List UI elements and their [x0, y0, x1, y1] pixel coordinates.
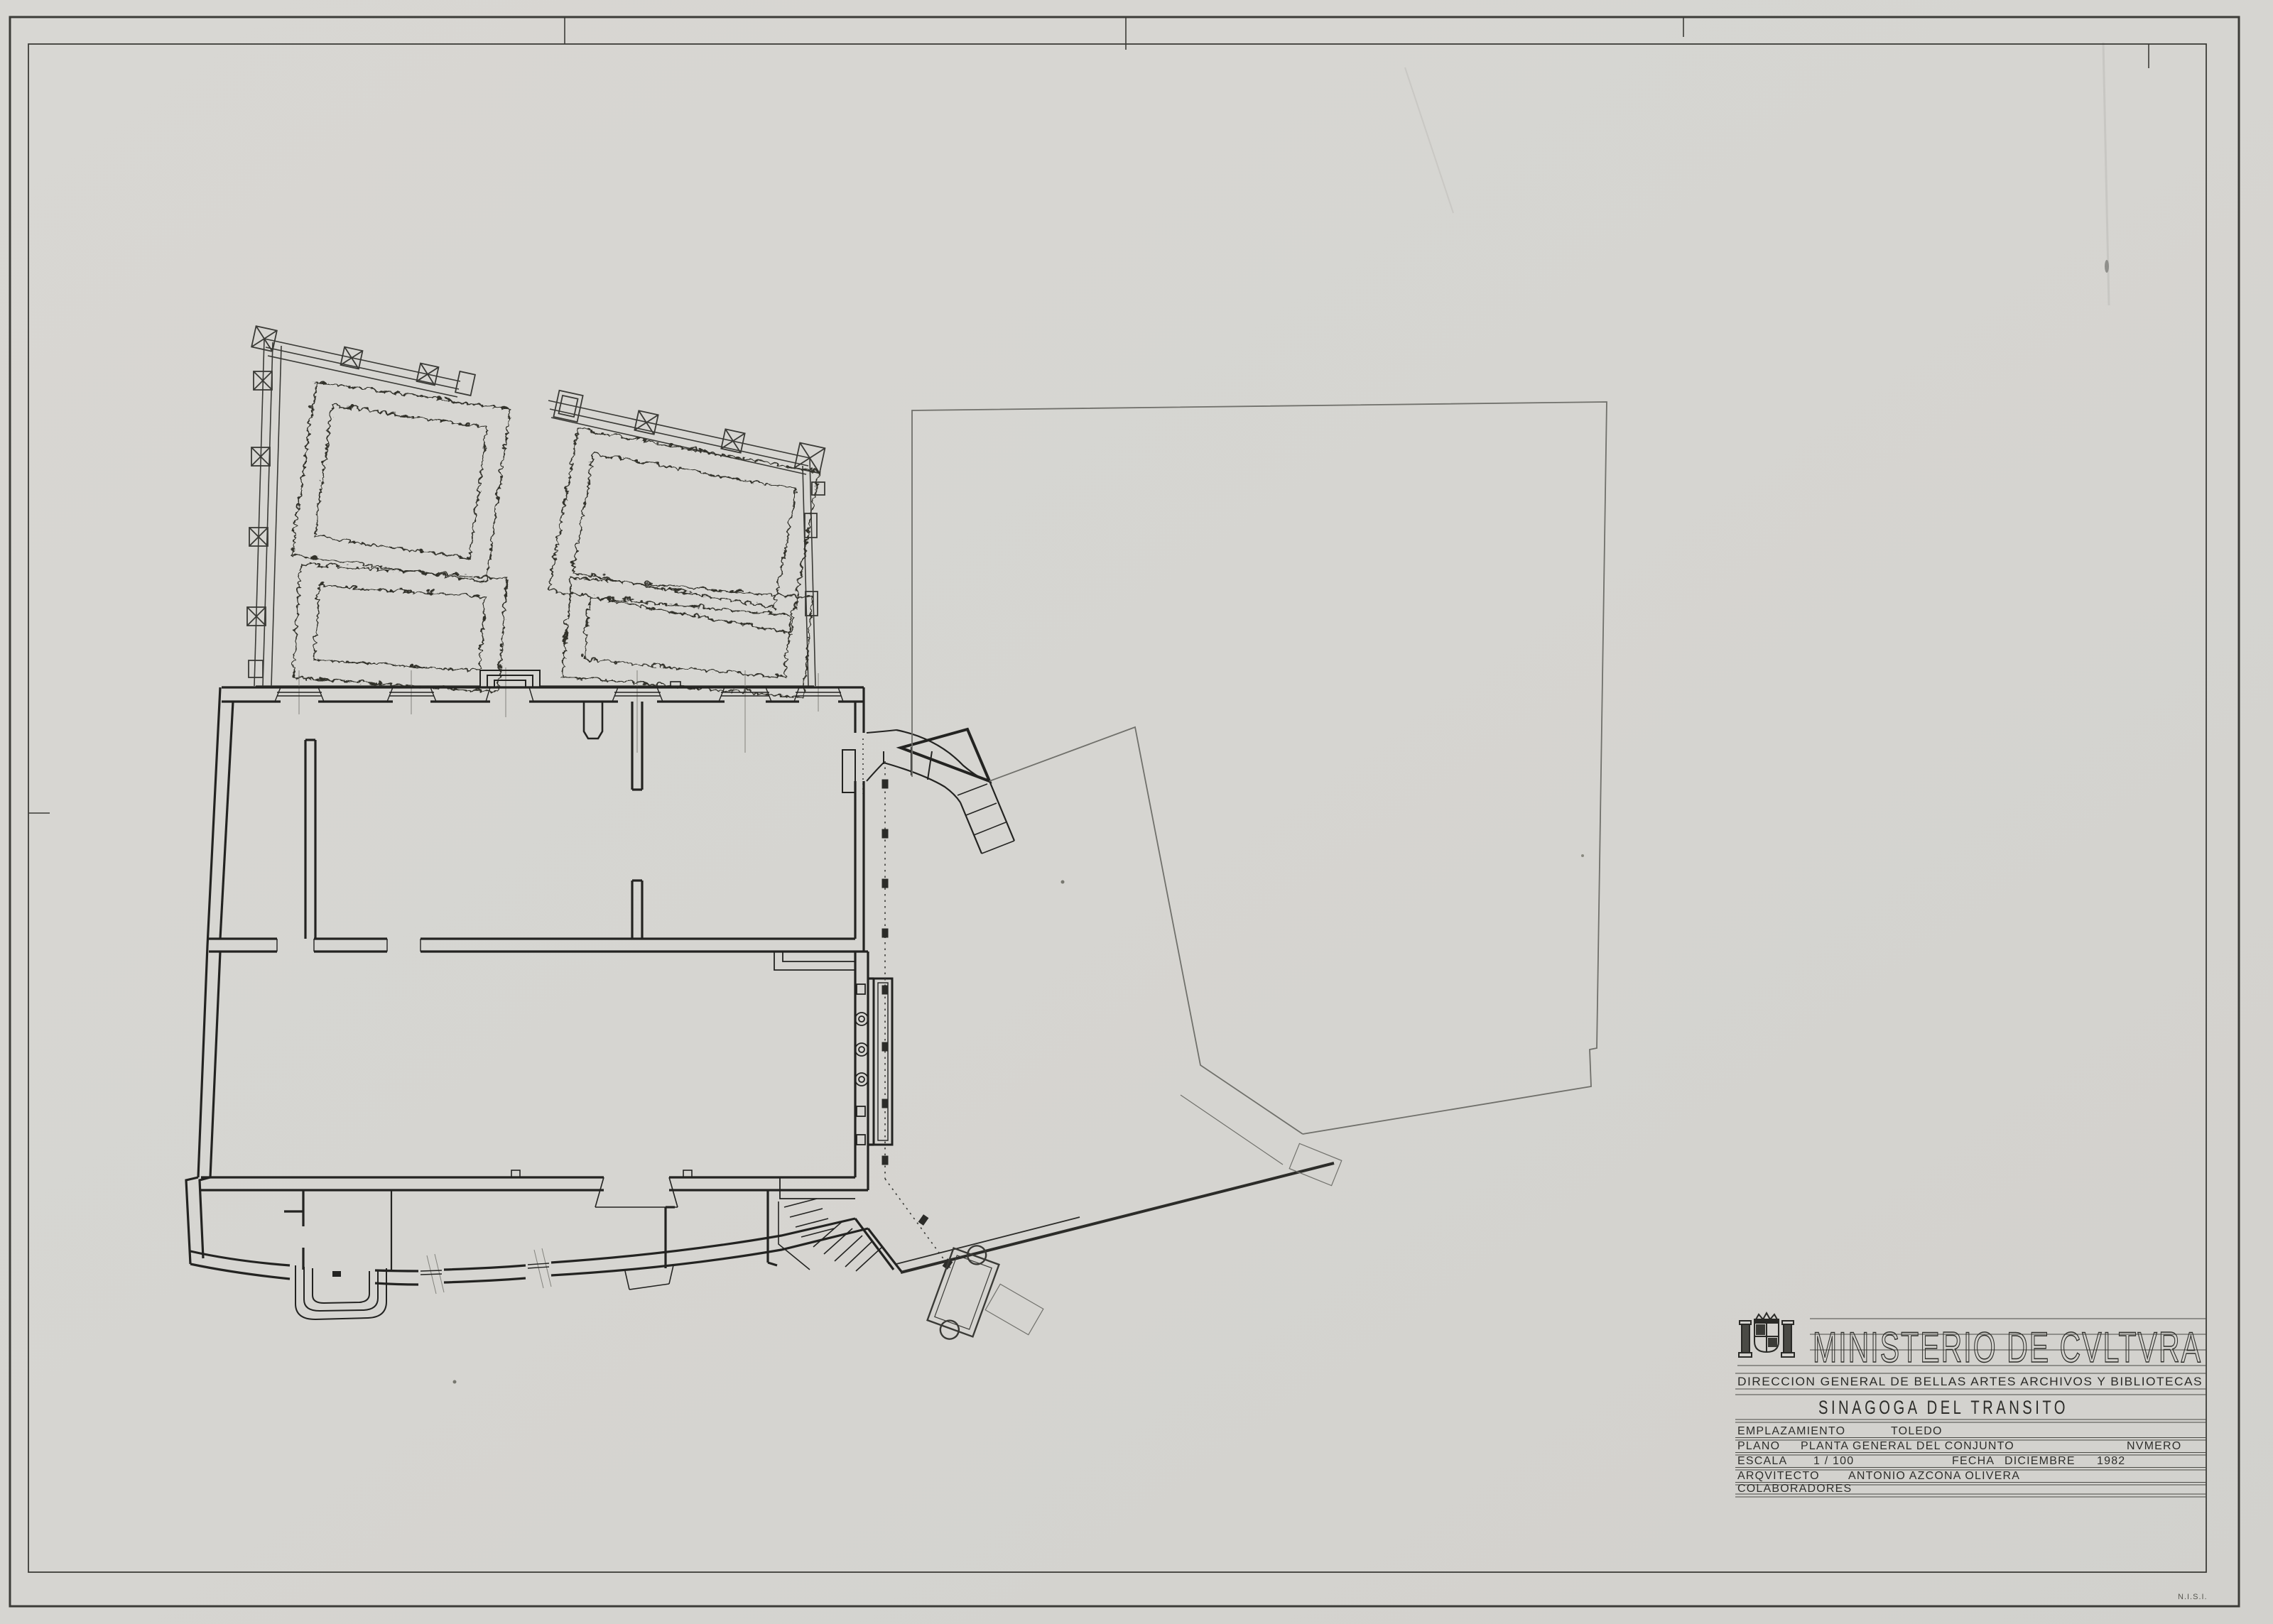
field-escala-value: 1 / 100: [1813, 1455, 1854, 1467]
field-fecha-label: FECHA: [1952, 1455, 1995, 1467]
field-fecha-year: 1982: [2097, 1455, 2125, 1467]
field-plano-value: PLANTA GENERAL DEL CONJUNTO: [1801, 1440, 2014, 1452]
department-line: DIRECCION GENERAL DE BELLAS ARTES ARCHIV…: [1737, 1375, 2203, 1388]
field-emplazamiento-value: TOLEDO: [1891, 1425, 1943, 1437]
plan-sheet-svg: MINISTERIO DE CVLTVRA DIRECCION GENERAL …: [0, 0, 2273, 1624]
project-title: SINAGOGA DEL TRANSITO: [1818, 1397, 2068, 1418]
field-arquitecto-value: ANTONIO AZCONA OLIVERA: [1848, 1470, 2020, 1482]
ministry-title: MINISTERIO DE CVLTVRA: [1813, 1324, 2202, 1371]
field-arquitecto-label: ARQVITECTO: [1737, 1470, 1820, 1482]
field-colaboradores-label: COLABORADORES: [1737, 1483, 1852, 1495]
field-fecha-value: DICIEMBRE: [2005, 1455, 2076, 1467]
scanned-drawing-sheet: MINISTERIO DE CVLTVRA DIRECCION GENERAL …: [0, 0, 2273, 1624]
field-emplazamiento-label: EMPLAZAMIENTO: [1737, 1425, 1845, 1437]
field-numero-label: NVMERO: [2127, 1440, 2181, 1452]
print-code: N.I.S.I.: [2178, 1593, 2208, 1601]
field-plano-label: PLANO: [1737, 1440, 1780, 1452]
field-escala-label: ESCALA: [1737, 1455, 1787, 1467]
